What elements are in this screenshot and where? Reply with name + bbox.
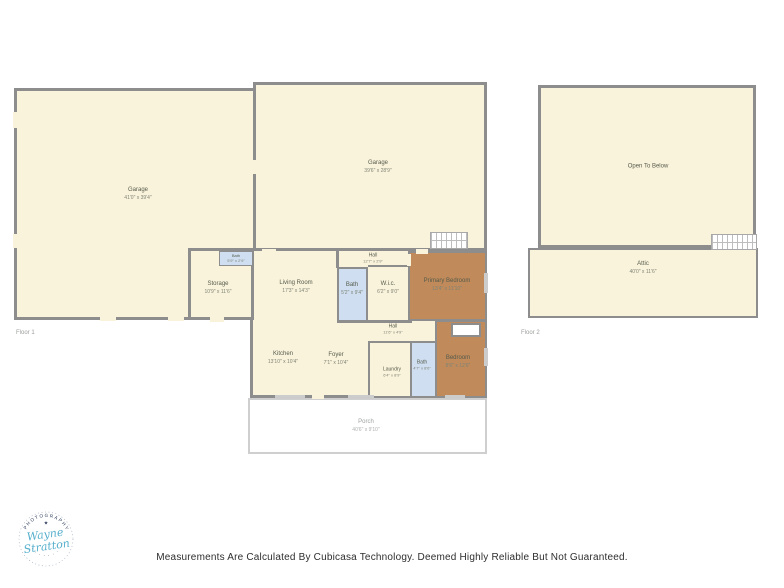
- staircase-icon: [430, 232, 468, 249]
- room-label-storage: Storage 10'9" x 11'6": [204, 281, 231, 295]
- measurement-disclaimer: Measurements Are Calculated By Cubicasa …: [0, 552, 784, 563]
- room-label-bedroom: Bedroom 8'6" x 12'6": [446, 355, 471, 369]
- window-marker: [348, 395, 374, 399]
- closet: [451, 323, 481, 337]
- door-opening: [210, 317, 224, 322]
- door-opening: [13, 234, 18, 248]
- room-label-garage-left: Garage 41'0" x 39'4": [124, 187, 151, 201]
- window-marker: [484, 348, 488, 366]
- door-opening: [13, 112, 18, 128]
- room-label-laundry: Laundry 6'4" x 8'9": [383, 366, 401, 377]
- room-label-primary-bedroom: Primary Bedroom 13'4" x 11'10": [424, 278, 471, 292]
- staircase-icon: [711, 234, 757, 250]
- wall-segment: [336, 250, 339, 268]
- door-opening: [168, 316, 184, 321]
- wall-segment: [368, 265, 410, 267]
- room-label-foyer: Foyer 7'1" x 10'4": [324, 352, 349, 366]
- room-label-wic: W.i.c. 6'2" x 9'0": [377, 281, 399, 295]
- door-opening: [407, 254, 411, 266]
- room-label-hall-bottom: Hall 11'6" x 4'9": [383, 323, 402, 334]
- door-opening: [312, 395, 324, 399]
- room-label-attic: Attic 40'0" x 11'6": [629, 261, 656, 275]
- room-label-garage-top: Garage 39'6" x 28'9": [364, 160, 391, 174]
- room-label-living-room: Living Room 17'3" x 14'3": [279, 280, 312, 294]
- window-marker: [445, 395, 465, 399]
- door-opening: [250, 160, 256, 174]
- door-opening: [416, 249, 428, 254]
- room-label-bath-2: Bath 5'2" x 9'4": [341, 282, 363, 296]
- room-label-hall-top: Hall 12'7" x 2'9": [363, 252, 383, 263]
- room-label-bath-3: Bath 4'7" x 8'6": [413, 359, 431, 370]
- floor-1-tag: Floor 1: [16, 330, 35, 336]
- room-label-bath-1: Bath 5'9" x 2'9": [227, 253, 245, 263]
- room-attic: [528, 248, 758, 318]
- floor-2-tag: Floor 2: [521, 330, 540, 336]
- window-marker: [484, 273, 488, 293]
- door-opening: [100, 316, 116, 321]
- logo-star-icon: ★: [44, 521, 49, 527]
- window-marker: [275, 395, 305, 399]
- room-label-kitchen: Kitchen 13'10" x 10'4": [268, 351, 298, 365]
- room-label-open-to-below: Open To Below: [628, 163, 669, 171]
- floorplan-canvas: Garage 41'0" x 39'4" Garage 39'6" x 28'9…: [0, 0, 784, 588]
- room-label-porch: Porch 40'6" x 9'10": [352, 419, 379, 433]
- door-opening: [262, 249, 276, 254]
